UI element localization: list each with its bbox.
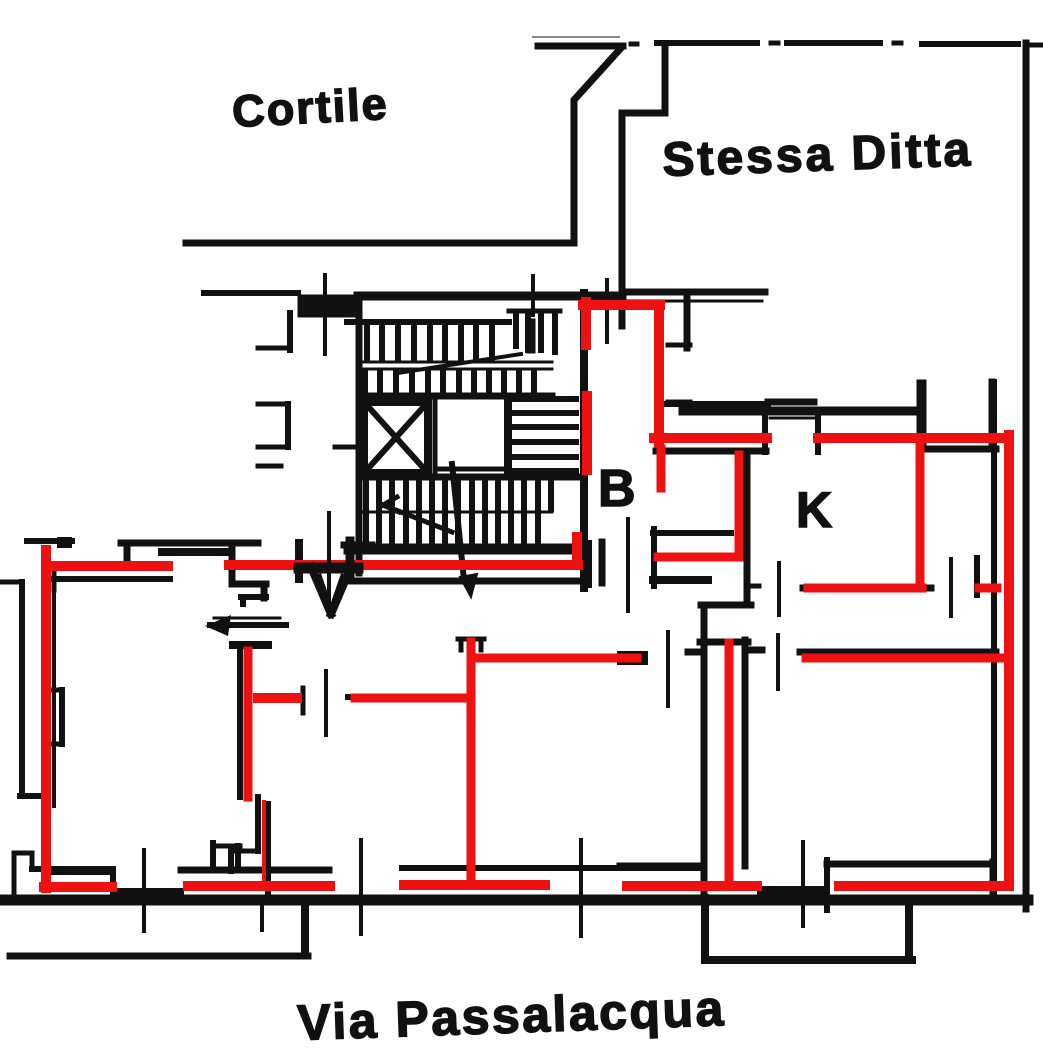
- svg-text:K: K: [796, 482, 832, 538]
- svg-text:B: B: [598, 460, 636, 518]
- svg-text:Stessa Ditta: Stessa Ditta: [662, 123, 974, 187]
- svg-text:Cortile: Cortile: [231, 78, 390, 137]
